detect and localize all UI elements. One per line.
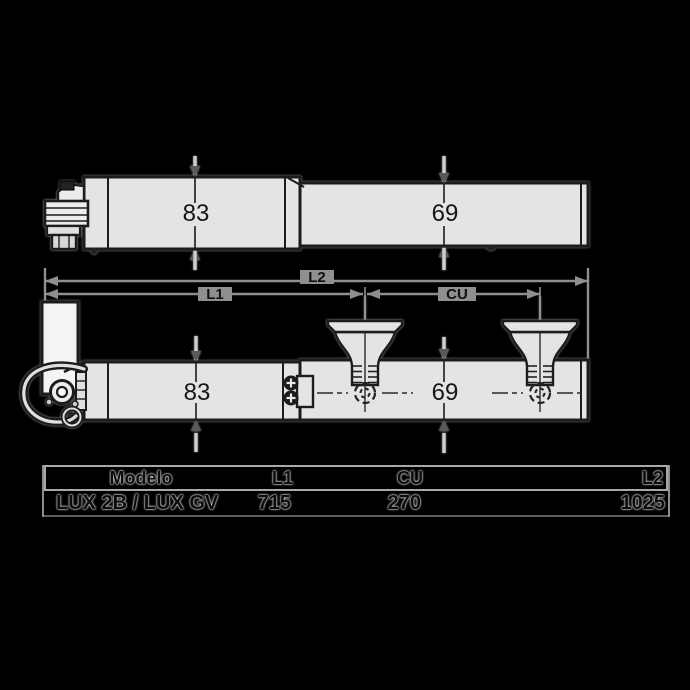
l2-label: L2 — [308, 269, 326, 286]
cell-l2: 1025 — [424, 492, 668, 515]
spec-table-data-row: LUX 2B / LUX GV 715 270 1025 — [44, 491, 668, 517]
top-view: 83 69 — [45, 156, 588, 270]
top-dim-83: 83 — [181, 156, 211, 270]
header-l1: L1 — [236, 468, 296, 489]
cell-cu: 270 — [294, 492, 424, 515]
side-dim-69: 69 — [430, 337, 460, 453]
cell-l1: 715 — [234, 492, 294, 515]
side-view: 83 69 — [24, 296, 588, 453]
top-clevis-mount — [45, 181, 88, 249]
cu-label: CU — [446, 286, 468, 303]
header-l2: L2 — [426, 468, 666, 489]
l1-label: L1 — [206, 286, 224, 303]
top-rod-width-label: 69 — [432, 200, 459, 227]
side-body-width-label: 83 — [184, 379, 211, 406]
top-dim-69: 69 — [430, 156, 460, 270]
header-modelo: Modelo — [46, 468, 236, 489]
side-coupling-block — [297, 376, 313, 407]
spec-table-header-row: Modelo L1 CU L2 — [44, 465, 668, 491]
diagram-stage: 83 69 L2 L1 — [0, 0, 690, 690]
length-dimensions: L2 L1 CU — [45, 268, 588, 359]
header-cu: CU — [296, 468, 426, 489]
actuator-technical-drawing: 83 69 L2 L1 — [0, 0, 690, 530]
cell-model: LUX 2B / LUX GV — [44, 492, 234, 515]
top-body-foot — [91, 248, 98, 255]
spec-table: Modelo L1 CU L2 LUX 2B / LUX GV 715 270 … — [42, 465, 670, 517]
top-rod-stop — [486, 246, 496, 251]
top-body-width-label: 83 — [183, 200, 210, 227]
side-dim-83: 83 — [182, 336, 212, 452]
side-bar-width-label: 69 — [432, 379, 459, 406]
